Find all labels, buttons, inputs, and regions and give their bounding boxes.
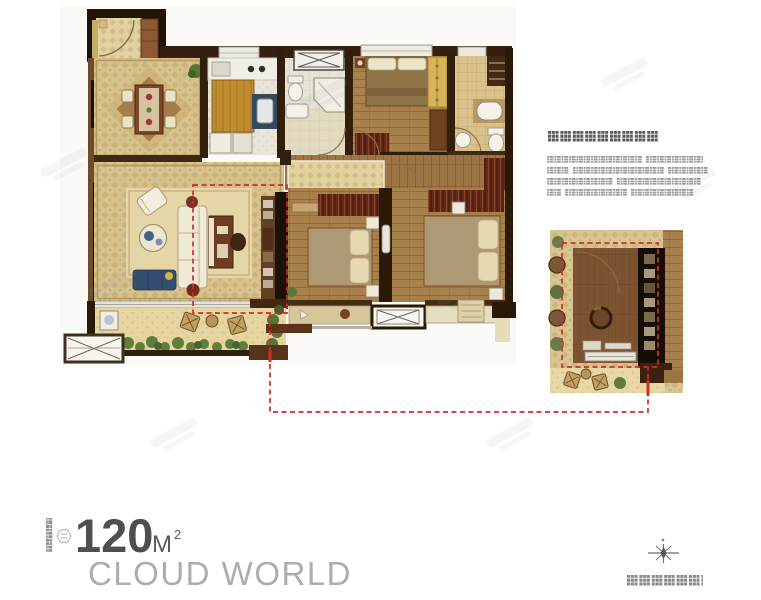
svg-text:CLOUD WORLD: CLOUD WORLD: [88, 555, 352, 592]
svg-text:2: 2: [174, 527, 181, 542]
svg-text:M: M: [152, 531, 172, 558]
